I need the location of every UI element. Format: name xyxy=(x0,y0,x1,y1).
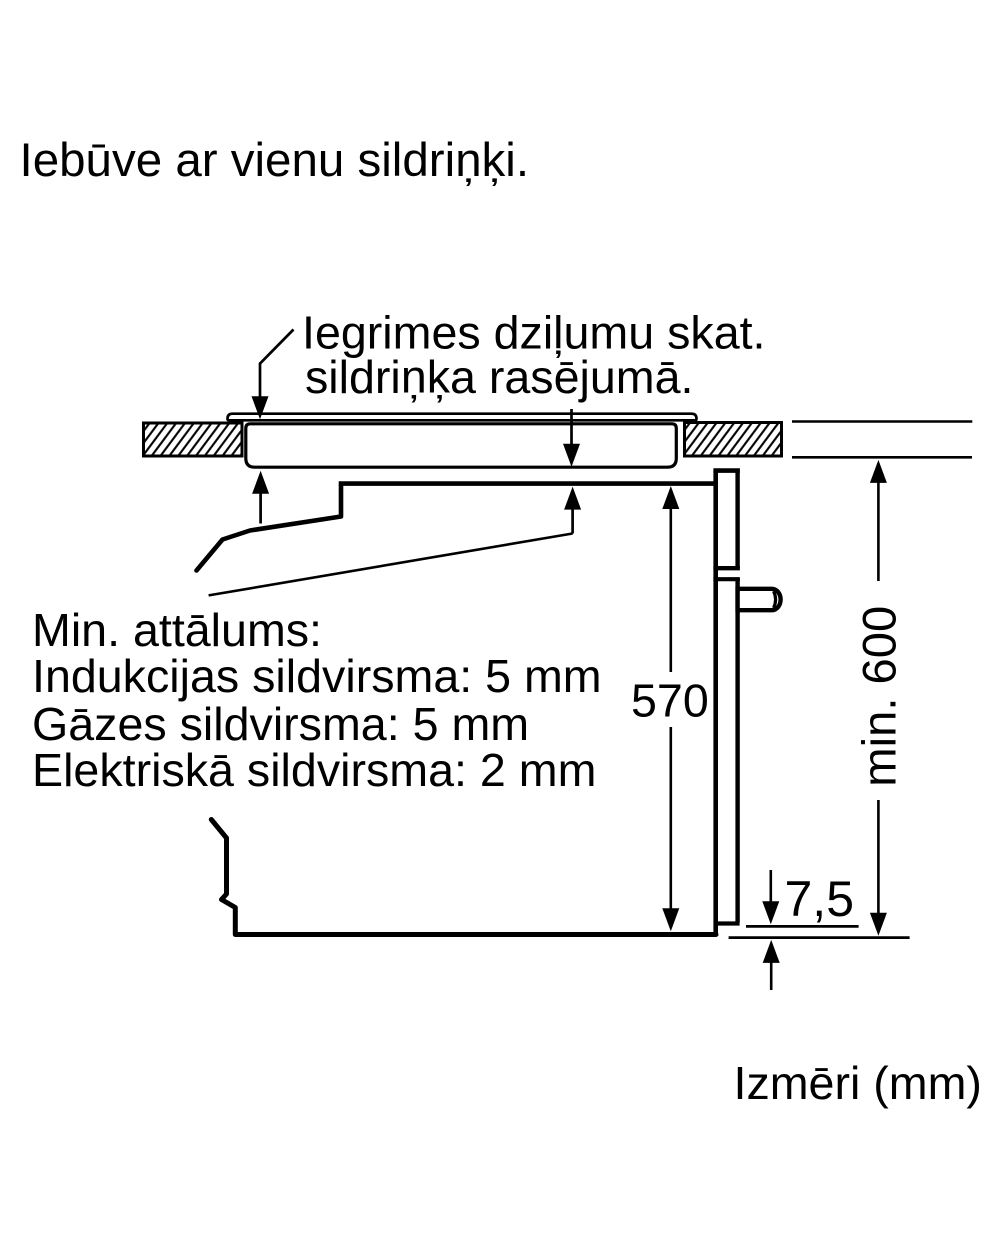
svg-text:Gāzes sildvirsma: 5 mm: Gāzes sildvirsma: 5 mm xyxy=(32,698,529,750)
svg-text:7,5: 7,5 xyxy=(785,871,855,927)
svg-text:Izmēri (mm): Izmēri (mm) xyxy=(734,1057,982,1109)
svg-text:sildriņķa rasējumā.: sildriņķa rasējumā. xyxy=(305,351,693,403)
svg-text:Indukcijas sildvirsma: 5 mm: Indukcijas sildvirsma: 5 mm xyxy=(32,650,602,702)
svg-text:570: 570 xyxy=(631,675,709,727)
svg-text:Min. attālums:: Min. attālums: xyxy=(32,604,322,656)
svg-text:min. 600: min. 600 xyxy=(853,606,906,787)
svg-text:Iebūve ar vienu sildriņķi.: Iebūve ar vienu sildriņķi. xyxy=(20,134,530,187)
svg-text:Elektriskā sildvirsma: 2 mm: Elektriskā sildvirsma: 2 mm xyxy=(32,744,596,796)
